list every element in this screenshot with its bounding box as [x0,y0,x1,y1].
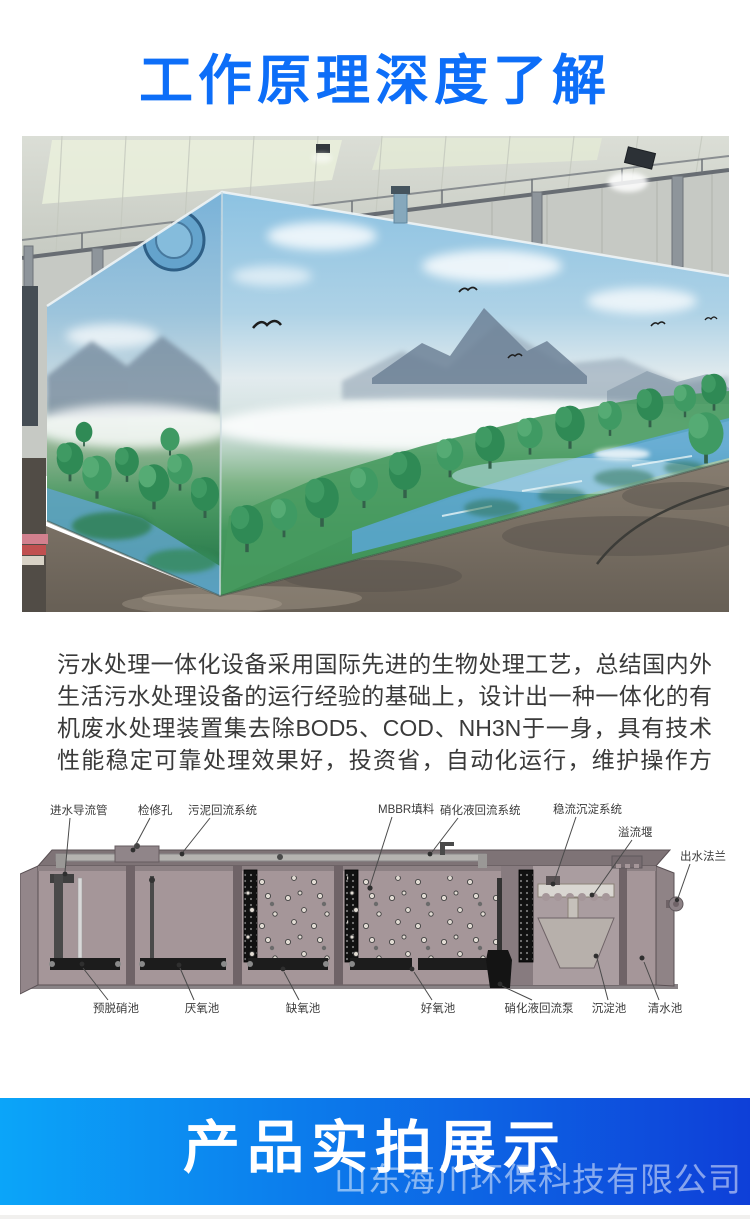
diagram-label-settling-system: 稳流沉淀系统 [553,802,622,816]
painted-fountain [594,448,650,460]
doorway [22,286,38,426]
diagram-label-sludge-return: 污泥回流系统 [188,803,257,817]
diagram-label-inlet-pipe: 进水导流管 [50,803,108,817]
company-watermark: 山东海川环保科技有限公司 [334,1153,742,1201]
mbbr-media-anoxic [246,876,330,960]
diagram-label-clear-water: 清水池 [648,1002,683,1015]
page-title: 工作原理深度了解 [139,36,611,115]
equipment-cutaway-diagram: 进水导流管 检修孔 污泥回流系统 MBBR填料 硝化液回流系统 稳流沉淀系统 溢… [20,800,730,1032]
diagram-label-overflow-weir: 溢流堰 [618,825,653,839]
process-diagram: 进水导流管 检修孔 污泥回流系统 MBBR填料 硝化液回流系统 稳流沉淀系统 溢… [20,800,730,1032]
tank-top-pipe-stub [391,186,410,223]
product-photo [22,136,729,612]
section-banner-product-photos: 产品实拍展示 山东海川环保科技有限公司 [0,1098,750,1205]
diagram-label-mbbr-media: MBBR填料 [378,802,435,816]
chamber2-pipe [150,876,154,958]
diagram-label-anaerobic: 厌氧池 [185,1001,220,1015]
diagram-label-pre-denitrification: 预脱硝池 [93,1001,139,1015]
diagram-label-outlet-flange: 出水法兰 [680,849,726,863]
diagram-label-return-pump: 硝化液回流泵 [505,1001,574,1015]
diagram-label-manhole: 检修孔 [138,803,173,817]
intro-paragraph: 污水处理一体化设备采用国际先进的生物处理工艺，总结国内外生活污水处理设备的运行经… [57,648,712,776]
diagram-label-sedimentation: 沉淀池 [592,1001,627,1015]
product-detail-page: 工作原理深度了解 [0,0,750,1219]
diagram-label-nitrification-return: 硝化液回流系统 [440,803,521,817]
manhole [115,843,159,862]
diagram-label-aerobic: 好氧池 [421,1001,456,1015]
warehouse-tank-photo-illustration [22,136,729,612]
diagram-label-anoxic: 缺氧池 [286,1001,321,1015]
section-header-working-principle: 工作原理深度了解 [0,0,750,136]
bottom-strip [0,1205,750,1219]
